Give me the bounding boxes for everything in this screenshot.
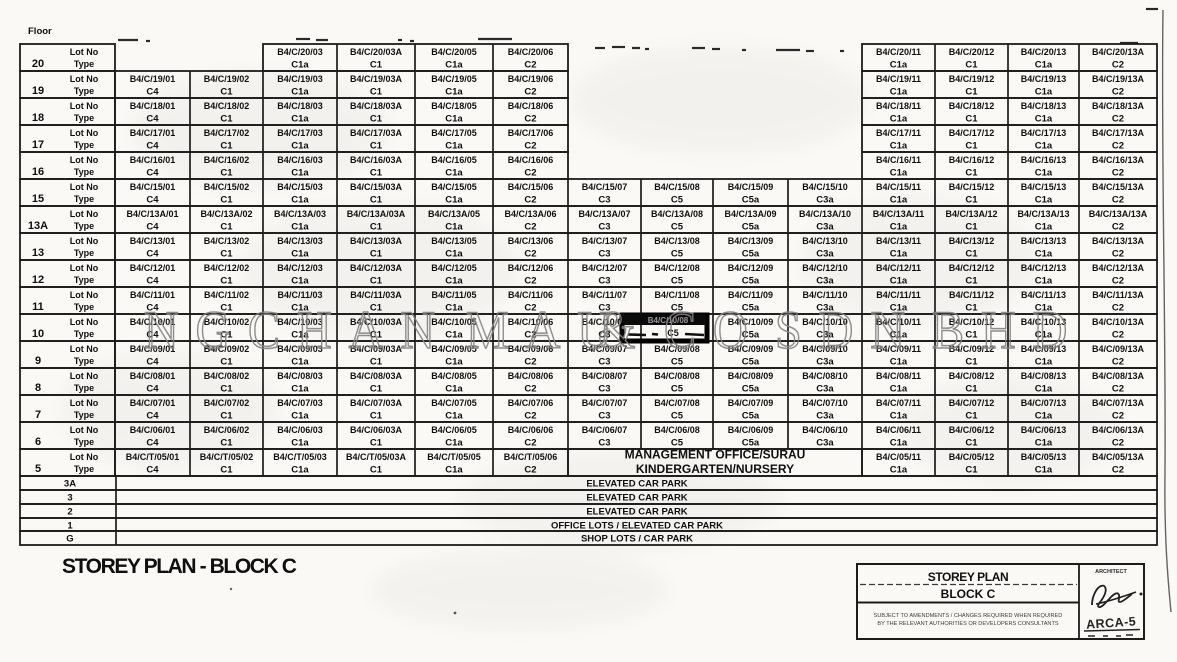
svg-text:C1: C1 [220,276,233,287]
svg-text:B4/C/18/03A: B4/C/18/03A [350,101,403,111]
svg-text:C4: C4 [146,114,159,125]
svg-text:C2: C2 [524,195,536,206]
svg-text:18: 18 [32,112,44,124]
svg-text:B4/C/05/11: B4/C/05/11 [876,452,921,462]
svg-text:C1: C1 [220,465,233,476]
svg-text:13A: 13A [28,220,48,232]
svg-text:C4: C4 [146,168,159,179]
svg-text:B4/C/13A/13: B4/C/13A/13 [1017,209,1069,219]
svg-text:B4/C/07/05: B4/C/07/05 [431,398,477,408]
svg-text:C2: C2 [1112,222,1124,233]
svg-text:C5a: C5a [742,276,760,287]
svg-text:B4/C/13A/05: B4/C/13A/05 [428,209,480,219]
svg-text:C1a: C1a [1035,60,1053,71]
svg-text:B4/C/T/05/02: B4/C/T/05/02 [200,452,254,462]
svg-text:C1: C1 [965,141,978,152]
svg-text:C1a: C1a [291,60,309,71]
svg-text:B4/C/07/12: B4/C/07/12 [949,398,995,408]
svg-text:B4/C/19/12: B4/C/19/12 [949,74,995,84]
svg-text:B4/C/13A/03A: B4/C/13A/03A [347,209,406,219]
svg-text:B4/C/15/03: B4/C/15/03 [277,182,323,192]
svg-text:B4/C/15/09: B4/C/15/09 [728,182,774,192]
svg-text:C1a: C1a [890,411,908,422]
svg-text:C1a: C1a [291,465,309,476]
svg-text:C2: C2 [524,114,536,125]
svg-text:SUBJECT TO AMENDMENTS / CHANGE: SUBJECT TO AMENDMENTS / CHANGES REQUIRED… [874,613,1063,619]
svg-text:Lot No: Lot No [70,263,99,273]
svg-text:B4/C/11/12: B4/C/11/12 [949,290,994,300]
svg-text:Lot No: Lot No [70,182,99,192]
svg-text:B4/C/19/05: B4/C/19/05 [431,74,477,84]
svg-text:11: 11 [32,301,44,313]
svg-text:C2: C2 [524,168,536,179]
svg-text:B4/C/19/13A: B4/C/19/13A [1092,74,1145,84]
svg-text:B4/C/18/03: B4/C/18/03 [277,101,323,111]
svg-text:B4/C/13A/11: B4/C/13A/11 [873,209,925,219]
svg-text:Type: Type [74,248,94,258]
svg-text:C1: C1 [370,465,383,476]
svg-text:B4/C/19/03: B4/C/19/03 [277,74,323,84]
svg-text:B4/C/11/10: B4/C/11/10 [802,290,847,300]
svg-text:B4/C/12/12: B4/C/12/12 [949,263,995,273]
svg-text:B4/C/06/01: B4/C/06/01 [130,425,176,435]
svg-text:C3: C3 [598,438,610,449]
svg-text:5: 5 [35,463,41,475]
svg-text:B4/C/17/11: B4/C/17/11 [876,128,921,138]
svg-text:Lot No: Lot No [70,236,99,246]
svg-text:C1: C1 [370,60,383,71]
svg-text:B4/C/13/13: B4/C/13/13 [1021,236,1067,246]
svg-text:B4/C/13/06: B4/C/13/06 [508,236,554,246]
svg-text:C1a: C1a [1035,222,1053,233]
svg-text:C5: C5 [671,384,684,395]
svg-text:C1: C1 [965,276,978,287]
svg-text:B4/C/16/02: B4/C/16/02 [204,155,250,165]
svg-text:C1a: C1a [890,222,908,233]
svg-text:C2: C2 [524,438,536,449]
svg-text:B4/C/13/13A: B4/C/13/13A [1092,236,1145,246]
svg-text:1: 1 [67,521,73,532]
svg-text:C2: C2 [1112,141,1124,152]
svg-text:C1a: C1a [1035,114,1053,125]
svg-text:C1a: C1a [445,249,463,260]
svg-text:B4/C/07/09: B4/C/07/09 [728,398,774,408]
svg-text:B4/C/06/03: B4/C/06/03 [277,425,323,435]
svg-text:B4/C/12/13: B4/C/12/13 [1021,263,1067,273]
svg-text:Type: Type [74,383,94,393]
svg-text:C1a: C1a [445,87,463,98]
svg-text:B4/C/20/03A: B4/C/20/03A [350,47,403,57]
svg-text:C4: C4 [146,465,159,476]
svg-text:C2: C2 [1112,60,1124,71]
svg-text:C1: C1 [220,438,233,449]
svg-text:Lot No: Lot No [70,47,99,57]
svg-text:C3a: C3a [816,438,834,449]
svg-text:B4/C/16/05: B4/C/16/05 [431,155,477,165]
svg-text:B4/C/17/03A: B4/C/17/03A [350,128,403,138]
svg-text:C1a: C1a [890,438,908,449]
svg-text:B4/C/20/13A: B4/C/20/13A [1092,47,1145,57]
svg-text:C1a: C1a [1035,87,1053,98]
svg-text:Lot No: Lot No [70,290,99,300]
svg-text:B4/C/13/10: B4/C/13/10 [802,236,848,246]
svg-text:B4/C/17/12: B4/C/17/12 [949,128,995,138]
svg-text:B4/C/13/01: B4/C/13/01 [130,236,176,246]
svg-text:B4/C/17/05: B4/C/17/05 [431,128,477,138]
svg-text:B4/C/06/06: B4/C/06/06 [508,425,554,435]
svg-text:C1: C1 [965,60,978,71]
svg-text:B4/C/08/05: B4/C/08/05 [431,371,477,381]
svg-text:Type: Type [74,464,94,474]
svg-text:C2: C2 [1112,411,1124,422]
svg-text:B4/C/12/05: B4/C/12/05 [431,263,477,273]
svg-text:B4/C/20/13: B4/C/20/13 [1021,47,1067,57]
svg-text:C1a: C1a [890,60,908,71]
svg-text:B4/C/16/13: B4/C/16/13 [1021,155,1067,165]
svg-text:C1a: C1a [291,222,309,233]
svg-text:B4/C/19/03A: B4/C/19/03A [350,74,403,84]
svg-text:C1: C1 [370,141,383,152]
svg-text:B4/C/18/11: B4/C/18/11 [876,101,921,111]
svg-text:C3: C3 [598,195,610,206]
svg-text:C2: C2 [1112,330,1124,341]
svg-text:C1: C1 [370,114,383,125]
svg-text:Type: Type [74,86,94,96]
svg-text:C2: C2 [1112,195,1124,206]
svg-text:OFFICE LOTS / ELEVATED CAR PAR: OFFICE LOTS / ELEVATED CAR PARK [551,521,723,532]
svg-text:C4: C4 [146,411,159,422]
svg-text:B4/C/07/10: B4/C/07/10 [802,398,848,408]
svg-text:C1a: C1a [445,60,463,71]
svg-text:Type: Type [74,410,94,420]
svg-text:B4/C/11/13A: B4/C/11/13A [1092,290,1144,300]
svg-text:B4/C/T/05/05: B4/C/T/05/05 [427,452,481,462]
svg-text:STOREY PLAN: STOREY PLAN [928,570,1009,584]
svg-text:C5: C5 [671,195,684,206]
svg-text:C2: C2 [524,87,536,98]
svg-text:B4/C/11/03A: B4/C/11/03A [350,290,402,300]
svg-text:C1: C1 [370,411,383,422]
svg-text:B4/C/13A/03: B4/C/13A/03 [274,209,326,219]
svg-text:C2: C2 [1112,384,1124,395]
svg-text:B4/C/12/03A: B4/C/12/03A [350,263,403,273]
svg-text:B4/C/07/13: B4/C/07/13 [1021,398,1067,408]
svg-text:C4: C4 [146,222,159,233]
svg-text:C1a: C1a [445,465,463,476]
svg-text:C4: C4 [146,141,159,152]
svg-text:B4/C/15/13A: B4/C/15/13A [1092,182,1145,192]
svg-text:B4/C/18/02: B4/C/18/02 [204,101,250,111]
svg-text:C2: C2 [1112,276,1124,287]
svg-text:B4/C/11/06: B4/C/11/06 [508,290,553,300]
svg-text:Lot No: Lot No [70,425,99,435]
svg-text:B4/C/12/10: B4/C/12/10 [802,263,848,273]
svg-text:2: 2 [67,507,72,518]
svg-text:C1a: C1a [445,411,463,422]
svg-text:Type: Type [74,59,94,69]
svg-text:C3a: C3a [816,195,834,206]
svg-text:B4/C/06/07: B4/C/06/07 [582,425,628,435]
svg-text:B4/C/06/03A: B4/C/06/03A [350,425,403,435]
svg-text:B4/C/07/13A: B4/C/07/13A [1092,398,1145,408]
svg-text:C2: C2 [1112,357,1124,368]
svg-text:C4: C4 [146,384,159,395]
svg-text:C1a: C1a [291,276,309,287]
svg-text:ELEVATED CAR PARK: ELEVATED CAR PARK [586,479,687,490]
svg-text:C2: C2 [524,465,536,476]
svg-text:B4/C/11/01: B4/C/11/01 [130,290,175,300]
svg-text:B4/C/T/05/03: B4/C/T/05/03 [273,452,327,462]
svg-text:B4/C/12/06: B4/C/12/06 [508,263,554,273]
svg-text:B4/C/16/03A: B4/C/16/03A [350,155,403,165]
svg-text:17: 17 [32,139,44,151]
svg-text:C1: C1 [965,114,978,125]
svg-text:C3: C3 [598,222,610,233]
svg-text:MANAGEMENT OFFICE/SURAU: MANAGEMENT OFFICE/SURAU [625,448,806,462]
svg-text:B4/C/12/01: B4/C/12/01 [130,263,176,273]
svg-text:C2: C2 [1112,303,1124,314]
svg-text:C2: C2 [524,222,536,233]
svg-text:C1a: C1a [890,87,908,98]
svg-text:B4/C/05/13: B4/C/05/13 [1021,452,1067,462]
svg-text:C2: C2 [524,60,536,71]
svg-text:C1a: C1a [445,384,463,395]
svg-text:C2: C2 [524,141,536,152]
svg-text:BY THE RELEVANT AUTHORITIES OR: BY THE RELEVANT AUTHORITIES OR DEVELOPER… [877,621,1058,627]
svg-text:B4/C/05/12: B4/C/05/12 [949,452,995,462]
svg-text:B4/C/06/12: B4/C/06/12 [949,425,995,435]
svg-text:C5: C5 [671,222,684,233]
svg-text:G: G [66,534,73,545]
svg-text:C1a: C1a [1035,384,1053,395]
svg-text:C1a: C1a [890,384,908,395]
svg-text:C1: C1 [370,87,383,98]
svg-text:Type: Type [74,194,94,204]
svg-text:Lot No: Lot No [70,398,99,408]
svg-text:B4/C/08/02: B4/C/08/02 [204,371,250,381]
svg-text:B4/C/13/12: B4/C/13/12 [949,236,995,246]
svg-text:B4/C/13A/08: B4/C/13A/08 [651,209,703,219]
svg-text:C1: C1 [965,465,978,476]
svg-text:B4/C/17/06: B4/C/17/06 [508,128,554,138]
svg-text:C1a: C1a [291,141,309,152]
svg-text:B4/C/T/05/06: B4/C/T/05/06 [504,452,558,462]
svg-text:B4/C/18/01: B4/C/18/01 [130,101,176,111]
svg-text:B4/C/18/06: B4/C/18/06 [508,101,554,111]
svg-text:C2: C2 [1112,87,1124,98]
svg-text:C2: C2 [524,276,536,287]
svg-text:B4/C/13/08: B4/C/13/08 [654,236,700,246]
svg-text:B4/C/10/13A: B4/C/10/13A [1092,317,1145,327]
svg-text:B4/C/11/03: B4/C/11/03 [277,290,322,300]
svg-text:C5a: C5a [742,384,760,395]
svg-text:B4/C/13A/02: B4/C/13A/02 [200,209,252,219]
svg-text:B4/C/06/09: B4/C/06/09 [728,425,774,435]
svg-text:Type: Type [74,275,94,285]
svg-text:B4/C/11/07: B4/C/11/07 [582,290,627,300]
svg-text:C1a: C1a [291,438,309,449]
svg-text:C1: C1 [370,384,383,395]
svg-text:B4/C/T/05/03A: B4/C/T/05/03A [346,452,407,462]
svg-text:B4/C/08/07: B4/C/08/07 [582,371,628,381]
svg-text:B4/C/13/09: B4/C/13/09 [728,236,774,246]
svg-text:B4/C/12/03: B4/C/12/03 [277,263,323,273]
svg-text:C3: C3 [598,276,610,287]
svg-text:ELEVATED CAR PARK: ELEVATED CAR PARK [586,507,687,518]
svg-text:C5: C5 [671,411,684,422]
svg-text:Lot No: Lot No [70,128,99,138]
svg-text:C1a: C1a [445,438,463,449]
svg-text:C5a: C5a [742,249,760,260]
svg-text:B4/C/18/12: B4/C/18/12 [949,101,995,111]
svg-text:Lot No: Lot No [70,155,99,165]
svg-text:C1: C1 [965,87,978,98]
svg-text:SHOP LOTS / CAR PARK: SHOP LOTS / CAR PARK [581,534,693,545]
svg-text:B4/C/15/11: B4/C/15/11 [876,182,921,192]
svg-text:B4/C/20/06: B4/C/20/06 [508,47,554,57]
svg-text:B4/C/05/13A: B4/C/05/13A [1092,452,1145,462]
svg-text:B4/C/08/12: B4/C/08/12 [949,371,995,381]
svg-text:12: 12 [32,274,44,286]
svg-text:Floor: Floor [28,26,52,37]
svg-text:C1: C1 [370,195,383,206]
svg-text:C1a: C1a [291,168,309,179]
svg-text:B4/C/11/11: B4/C/11/11 [876,290,921,300]
svg-text:C1a: C1a [890,465,908,476]
svg-text:C1a: C1a [445,195,463,206]
svg-text:C1: C1 [370,276,383,287]
svg-text:B4/C/11/08: B4/C/11/08 [654,290,699,300]
svg-text:C1: C1 [220,384,233,395]
svg-text:Lot No: Lot No [70,371,99,381]
svg-text:B4/C/13/02: B4/C/13/02 [204,236,250,246]
svg-text:B4/C/13/03: B4/C/13/03 [277,236,323,246]
svg-text:B4/C/13/11: B4/C/13/11 [876,236,921,246]
svg-text:B4/C/19/02: B4/C/19/02 [204,74,250,84]
svg-text:B4/C/13A/10: B4/C/13A/10 [799,209,851,219]
svg-text:C3: C3 [598,249,610,260]
svg-text:B4/C/06/13A: B4/C/06/13A [1092,425,1145,435]
svg-text:B4/C/17/13A: B4/C/17/13A [1092,128,1145,138]
svg-text:B4/C/15/10: B4/C/15/10 [802,182,848,192]
svg-text:B4/C/07/07: B4/C/07/07 [582,398,628,408]
svg-text:B4/C/16/12: B4/C/16/12 [949,155,995,165]
svg-text:C1: C1 [370,168,383,179]
svg-text:C2: C2 [524,249,536,260]
svg-text:C1: C1 [220,411,233,422]
svg-text:C1a: C1a [291,195,309,206]
svg-text:C1a: C1a [1035,168,1053,179]
svg-text:B4/C/11/09: B4/C/11/09 [728,290,773,300]
svg-text:C1a: C1a [291,114,309,125]
svg-text:B4/C/13A/07: B4/C/13A/07 [578,209,630,219]
svg-text:13: 13 [32,247,44,259]
svg-text:Type: Type [74,302,94,312]
svg-text:C1a: C1a [890,168,908,179]
svg-text:B4/C/20/11: B4/C/20/11 [876,47,921,57]
svg-text:B4/C/18/05: B4/C/18/05 [431,101,477,111]
svg-text:B4/C/08/11: B4/C/08/11 [876,371,921,381]
svg-text:B4/C/06/10: B4/C/06/10 [802,425,848,435]
svg-text:NGCHANMAU&COSDNBHD: NGCHANMAU&COSDNBHD [144,300,1084,360]
svg-text:B4/C/19/11: B4/C/19/11 [876,74,921,84]
svg-text:Lot No: Lot No [70,452,99,462]
svg-text:C3: C3 [598,384,610,395]
svg-text:B4/C/16/11: B4/C/16/11 [876,155,921,165]
svg-text:C1: C1 [965,438,978,449]
svg-text:C1a: C1a [1035,411,1053,422]
svg-text:C1a: C1a [445,276,463,287]
svg-text:B4/C/18/13A: B4/C/18/13A [1092,101,1145,111]
svg-text:B4/C/13/05: B4/C/13/05 [431,236,477,246]
svg-text:C3a: C3a [816,384,834,395]
svg-text:B4/C/16/03: B4/C/16/03 [277,155,323,165]
svg-text:B4/C/06/05: B4/C/06/05 [431,425,477,435]
svg-text:C2: C2 [1112,438,1124,449]
svg-text:C1a: C1a [445,114,463,125]
svg-text:B4/C/07/03A: B4/C/07/03A [350,398,403,408]
svg-text:3A: 3A [64,479,76,490]
svg-text:B4/C/15/02: B4/C/15/02 [204,182,250,192]
svg-text:BLOCK C: BLOCK C [941,587,996,601]
svg-text:B4/C/20/03: B4/C/20/03 [277,47,323,57]
svg-text:B4/C/08/03A: B4/C/08/03A [350,371,403,381]
svg-text:C4: C4 [146,276,159,287]
svg-text:C1a: C1a [1035,438,1053,449]
svg-text:C1a: C1a [445,141,463,152]
svg-text:Type: Type [74,437,94,447]
svg-text:B4/C/11/05: B4/C/11/05 [431,290,476,300]
svg-text:C3a: C3a [816,411,834,422]
svg-text:B4/C/08/09: B4/C/08/09 [728,371,774,381]
svg-text:B4/C/16/06: B4/C/16/06 [508,155,554,165]
svg-text:B4/C/07/06: B4/C/07/06 [508,398,554,408]
svg-text:B4/C/19/13: B4/C/19/13 [1021,74,1067,84]
svg-text:B4/C/07/11: B4/C/07/11 [876,398,921,408]
svg-text:C5: C5 [671,276,684,287]
svg-text:B4/C/08/13: B4/C/08/13 [1021,371,1067,381]
svg-text:B4/C/20/12: B4/C/20/12 [949,47,995,57]
svg-text:B4/C/08/01: B4/C/08/01 [130,371,176,381]
svg-text:B4/C/08/13A: B4/C/08/13A [1092,371,1145,381]
svg-text:B4/C/11/13: B4/C/11/13 [1021,290,1066,300]
svg-text:C1a: C1a [1035,141,1053,152]
svg-text:B4/C/08/08: B4/C/08/08 [654,371,700,381]
svg-text:B4/C/08/03: B4/C/08/03 [277,371,323,381]
svg-text:B4/C/15/01: B4/C/15/01 [130,182,176,192]
svg-text:C1a: C1a [291,87,309,98]
svg-text:C4: C4 [146,438,159,449]
svg-text:B4/C/07/01: B4/C/07/01 [130,398,176,408]
svg-text:ELEVATED CAR PARK: ELEVATED CAR PARK [586,493,687,504]
svg-text:B4/C/06/13: B4/C/06/13 [1021,425,1067,435]
svg-text:C1a: C1a [291,411,309,422]
svg-text:C3a: C3a [816,249,834,260]
svg-text:Type: Type [74,167,94,177]
svg-text:C1: C1 [220,168,233,179]
svg-text:C1: C1 [220,222,233,233]
svg-text:B4/C/07/08: B4/C/07/08 [654,398,700,408]
svg-text:B4/C/11/02: B4/C/11/02 [204,290,249,300]
svg-text:B4/C/20/05: B4/C/20/05 [431,47,477,57]
svg-text:Type: Type [74,329,94,339]
svg-text:B4/C/06/02: B4/C/06/02 [204,425,250,435]
svg-text:C1: C1 [965,168,978,179]
svg-text:B4/C/17/02: B4/C/17/02 [204,128,250,138]
svg-text:8: 8 [35,382,41,394]
svg-text:B4/C/17/03: B4/C/17/03 [277,128,323,138]
svg-text:B4/C/12/07: B4/C/12/07 [582,263,628,273]
